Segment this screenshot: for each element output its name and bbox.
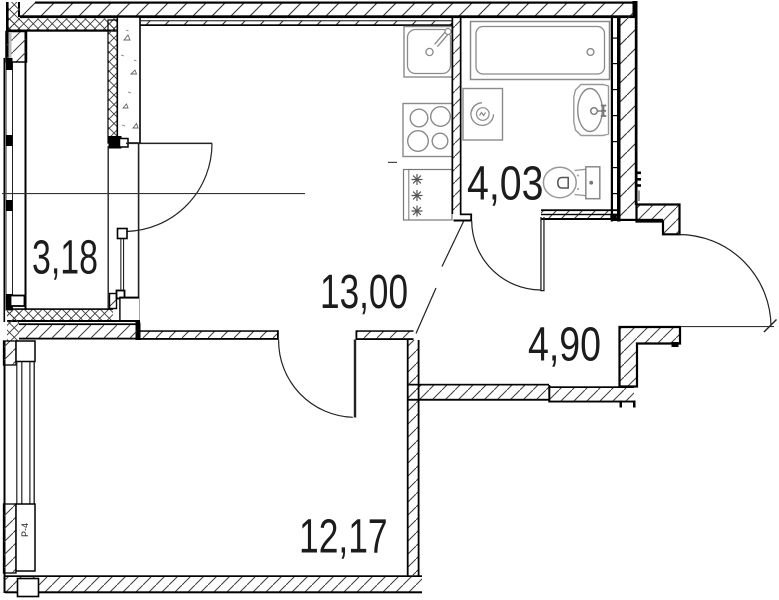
svg-text:P-4: P-4: [20, 523, 30, 537]
svg-text:4,90: 4,90: [528, 318, 601, 371]
svg-text:13,00: 13,00: [320, 265, 408, 319]
svg-text:3,18: 3,18: [32, 230, 98, 284]
svg-text:12,17: 12,17: [299, 509, 388, 562]
svg-text:4,03: 4,03: [467, 157, 544, 211]
